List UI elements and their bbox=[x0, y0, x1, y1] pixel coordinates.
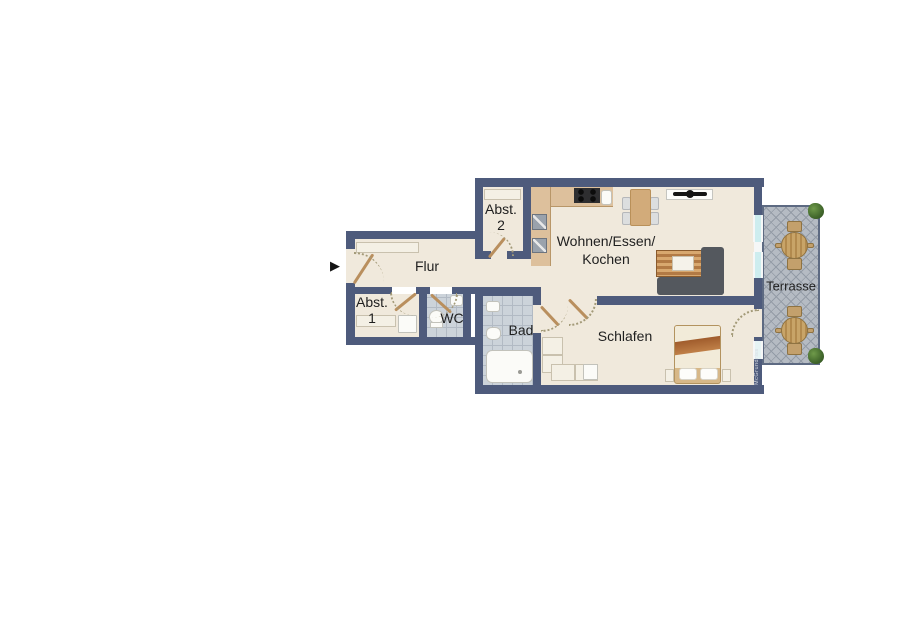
terrace-armrest-icon bbox=[775, 328, 782, 333]
wall-segment bbox=[475, 385, 764, 394]
wall-segment bbox=[346, 231, 476, 239]
terrace-chair-icon bbox=[787, 221, 802, 232]
abstellraum-2-shelf bbox=[484, 189, 521, 200]
bad-door-opening bbox=[533, 305, 541, 333]
wall-segment bbox=[475, 287, 483, 394]
kitchen-sink-icon bbox=[601, 190, 612, 205]
plant-icon bbox=[808, 348, 824, 364]
bedroom-wardrobe bbox=[542, 337, 563, 355]
window-mullion bbox=[754, 242, 762, 252]
room-label-schlafen: Schlafen bbox=[598, 328, 652, 344]
terrace-table-icon bbox=[781, 232, 808, 259]
wall-segment bbox=[355, 287, 392, 294]
wall-segment bbox=[346, 337, 476, 345]
room-label-abstellraum-2: Abst. 2 bbox=[485, 201, 517, 233]
window bbox=[753, 215, 763, 242]
tv-icon bbox=[686, 190, 694, 198]
dining-chair-icon bbox=[650, 197, 659, 210]
sideboard-tray bbox=[672, 256, 694, 271]
flur-wardrobe bbox=[356, 242, 419, 253]
plant-icon bbox=[808, 203, 824, 219]
floor-plan: Flur Abst. 1 Abst. 2 WC Bad Wohnen/Essen… bbox=[0, 0, 900, 635]
terrace-chair-icon bbox=[787, 343, 802, 355]
bath-sink-icon bbox=[486, 301, 500, 312]
room-label-bad: Bad bbox=[509, 322, 534, 338]
shower-tub bbox=[486, 350, 533, 383]
sofa bbox=[657, 277, 724, 295]
watermark: McGrundriss bbox=[753, 343, 763, 385]
pillow-icon bbox=[700, 368, 718, 380]
bed bbox=[674, 325, 721, 384]
window bbox=[753, 252, 763, 278]
wall-segment bbox=[346, 231, 355, 249]
dining-chair-icon bbox=[650, 212, 659, 225]
room-label-wohnen-essen-kochen: Wohnen/Essen/ Kochen bbox=[557, 232, 656, 268]
nightstand bbox=[665, 369, 674, 382]
bath-toilet-icon bbox=[486, 327, 501, 340]
appliance-icon bbox=[532, 238, 547, 253]
wall-segment bbox=[475, 187, 483, 259]
terrace-chair-icon bbox=[787, 258, 802, 270]
wall-segment bbox=[346, 283, 355, 345]
room-label-wc: WC bbox=[440, 310, 463, 326]
abstellraum-1-box bbox=[398, 315, 417, 333]
drain-icon bbox=[518, 370, 522, 374]
room-label-abstellraum-1: Abst. 1 bbox=[356, 294, 388, 326]
terrace-armrest-icon bbox=[807, 243, 814, 248]
terrace-armrest-icon bbox=[775, 243, 782, 248]
terrace-table-icon bbox=[781, 317, 808, 344]
dishwasher-icon bbox=[532, 214, 547, 230]
wall-segment bbox=[483, 287, 533, 296]
wall-segment bbox=[533, 287, 541, 394]
wall-segment bbox=[416, 287, 430, 294]
wall-segment bbox=[463, 294, 471, 337]
bedroom-wardrobe bbox=[551, 364, 575, 381]
pillow-icon bbox=[679, 368, 697, 380]
bedroom-dresser bbox=[583, 364, 598, 380]
terrace-chair-icon bbox=[787, 306, 802, 317]
dining-table bbox=[630, 189, 651, 226]
terrace-armrest-icon bbox=[807, 328, 814, 333]
entrance-arrow-icon: ▶ bbox=[330, 258, 346, 274]
wall-segment bbox=[475, 178, 764, 187]
stove-icon bbox=[574, 188, 600, 203]
wall-segment bbox=[419, 294, 427, 337]
wall-segment bbox=[597, 296, 762, 305]
nightstand bbox=[722, 369, 731, 382]
room-label-flur: Flur bbox=[415, 258, 439, 274]
flur-passage-floor bbox=[475, 259, 483, 287]
wall-segment bbox=[523, 187, 531, 259]
room-label-terrasse: Terrasse bbox=[766, 279, 816, 294]
